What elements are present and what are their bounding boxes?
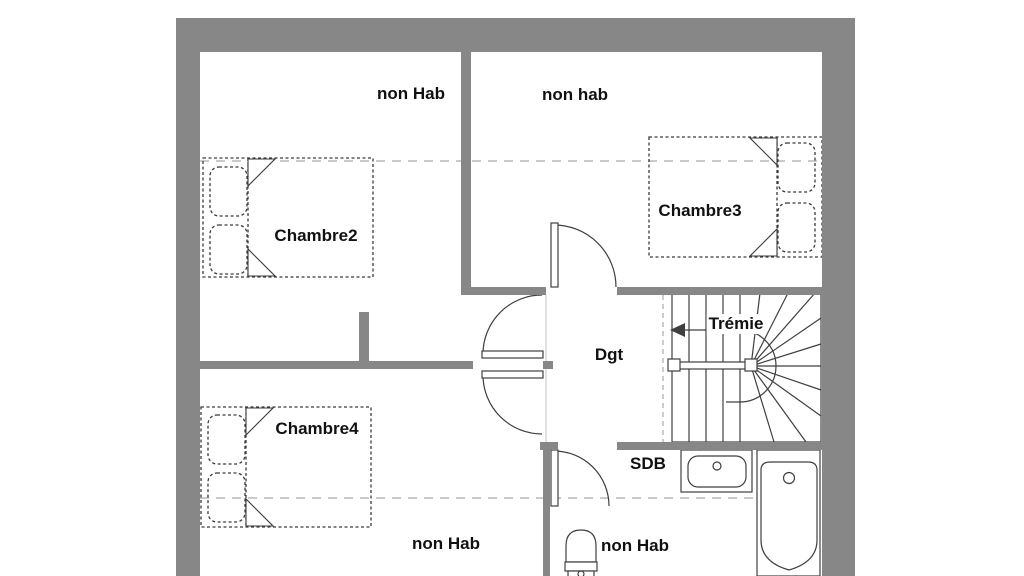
area-label-non-hab-bottom-left: non Hab (412, 534, 480, 554)
stairs-newel-right (745, 359, 757, 371)
wall-exterior-top (176, 18, 855, 52)
room-label-sdb: SDB (630, 454, 666, 474)
stairs-newel-left (668, 359, 680, 371)
wall-chambre2-chambre4-divider (200, 361, 473, 369)
wall-exterior-left (176, 18, 200, 576)
wall-stub-vertical (359, 312, 369, 361)
area-label-non-hab-top-right: non hab (542, 85, 608, 105)
toilet-icon (565, 530, 597, 576)
door-chambre4 (482, 371, 543, 434)
stairs-label-tremie: Trémie (707, 314, 766, 334)
wall-dgt-door-stub (543, 361, 553, 369)
sink-icon (681, 450, 752, 492)
room-label-chambre4: Chambre4 (275, 419, 358, 439)
bathtub-icon (757, 450, 820, 576)
wall-mid-left-segment (461, 287, 546, 295)
door-chambre2 (482, 295, 543, 358)
wall-divider-top-vertical (461, 52, 471, 295)
door-chambre3-room (551, 223, 616, 287)
room-label-dgt: Dgt (595, 345, 623, 365)
area-label-non-hab-top-left: non Hab (377, 84, 445, 104)
wall-exterior-right (822, 18, 855, 576)
room-label-chambre3: Chambre3 (658, 201, 741, 221)
wall-sdb-top-right-segment (617, 442, 822, 450)
bed-chambre2-icon (203, 158, 373, 277)
area-label-non-hab-bottom-right: non Hab (601, 536, 669, 556)
stairs-handrail (672, 362, 751, 369)
wall-mid-right-segment (617, 287, 822, 295)
floor-plan: non Hab non hab Chambre2 Chambre3 Chambr… (0, 0, 1024, 576)
wall-sdb-left-vertical (543, 442, 550, 576)
bed-chambre3-icon (649, 137, 822, 257)
room-label-chambre2: Chambre2 (274, 226, 357, 246)
